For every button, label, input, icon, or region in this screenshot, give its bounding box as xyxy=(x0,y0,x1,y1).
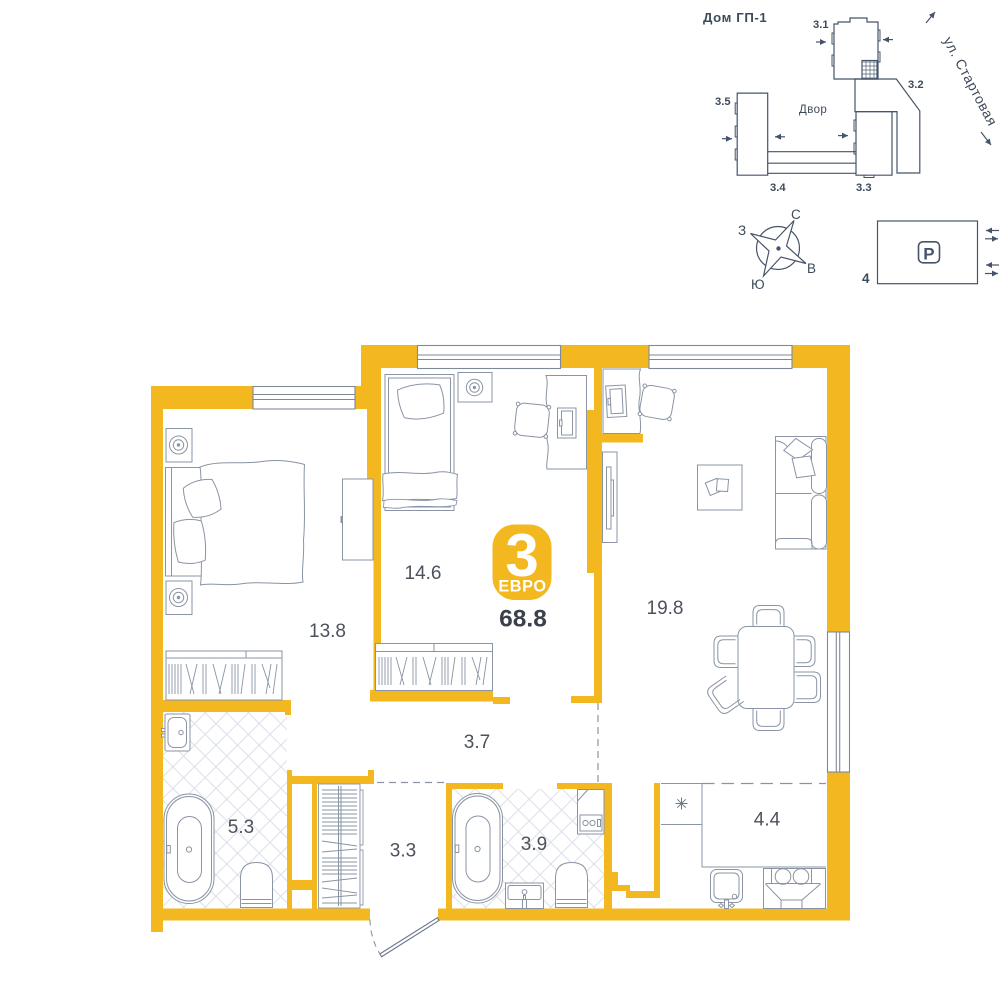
svg-text:68.8: 68.8 xyxy=(499,606,547,633)
svg-text:4: 4 xyxy=(862,271,870,286)
svg-text:3.9: 3.9 xyxy=(521,834,547,855)
svg-text:Дом ГП-1: Дом ГП-1 xyxy=(703,10,767,25)
svg-text:14.6: 14.6 xyxy=(405,563,442,584)
svg-text:3.7: 3.7 xyxy=(464,732,490,753)
svg-text:3.3: 3.3 xyxy=(390,841,416,862)
svg-text:3.1: 3.1 xyxy=(813,19,829,31)
svg-text:З: З xyxy=(738,223,746,238)
svg-text:19.8: 19.8 xyxy=(647,598,684,619)
svg-text:С: С xyxy=(791,207,801,222)
svg-text:ЕВРО: ЕВРО xyxy=(498,578,546,596)
svg-text:3.5: 3.5 xyxy=(715,96,731,108)
svg-text:4.4: 4.4 xyxy=(754,810,781,831)
svg-text:3.4: 3.4 xyxy=(770,182,786,194)
svg-text:Двор: Двор xyxy=(799,104,827,116)
svg-text:3.2: 3.2 xyxy=(908,79,924,91)
svg-text:5.3: 5.3 xyxy=(228,817,254,838)
svg-text:В: В xyxy=(807,261,816,276)
svg-text:Ю: Ю xyxy=(751,277,765,292)
svg-text:P: P xyxy=(923,245,934,264)
svg-text:3.3: 3.3 xyxy=(856,182,872,194)
svg-text:13.8: 13.8 xyxy=(309,621,346,642)
